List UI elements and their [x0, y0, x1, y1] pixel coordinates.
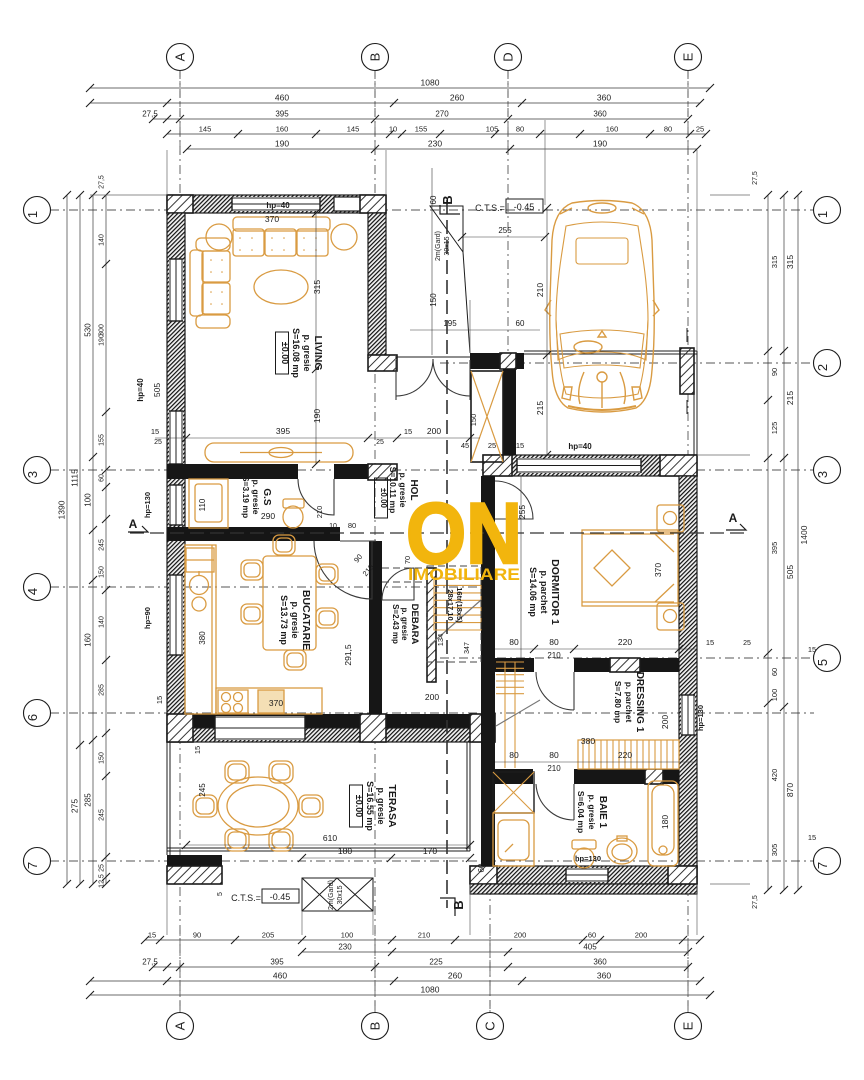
svg-text:D: D — [501, 52, 516, 61]
svg-text:A: A — [173, 1021, 188, 1030]
svg-text:80: 80 — [516, 125, 524, 134]
svg-text:S=16.55 mp: S=16.55 mp — [365, 781, 375, 831]
svg-text:S=13.73 mp: S=13.73 mp — [279, 595, 289, 645]
svg-text:360: 360 — [597, 971, 611, 981]
svg-text:12,5: 12,5 — [99, 874, 106, 888]
svg-text:3: 3 — [815, 471, 830, 478]
svg-text:150: 150 — [99, 752, 106, 764]
svg-text:360: 360 — [593, 110, 607, 119]
svg-text:15: 15 — [808, 645, 816, 654]
svg-text:215: 215 — [535, 401, 545, 415]
svg-text:370: 370 — [653, 563, 663, 577]
svg-text:30x15: 30x15 — [337, 885, 344, 904]
svg-text:60: 60 — [99, 474, 106, 482]
svg-text:245: 245 — [99, 539, 106, 551]
svg-text:150: 150 — [99, 566, 106, 578]
svg-text:420: 420 — [770, 769, 779, 782]
svg-text:315: 315 — [785, 255, 795, 269]
svg-text:270: 270 — [435, 110, 449, 119]
svg-text:3: 3 — [25, 471, 40, 478]
svg-text:A: A — [173, 52, 188, 61]
svg-text:60: 60 — [770, 668, 779, 676]
svg-text:1390: 1390 — [57, 500, 67, 519]
svg-text:45: 45 — [461, 441, 469, 450]
svg-text:125: 125 — [770, 422, 779, 435]
svg-text:180: 180 — [338, 846, 352, 856]
svg-text:145: 145 — [347, 125, 360, 134]
svg-text:DEBARA: DEBARA — [409, 604, 420, 645]
svg-text:hp=130: hp=130 — [143, 492, 152, 518]
svg-text:p. parchet: p. parchet — [539, 570, 549, 613]
svg-text:27,5: 27,5 — [142, 110, 158, 119]
svg-text:S=10.11 mp: S=10.11 mp — [388, 467, 398, 514]
svg-text:245: 245 — [198, 783, 207, 797]
svg-text:p. gresie: p. gresie — [302, 334, 312, 371]
svg-text:E: E — [681, 52, 696, 61]
svg-text:60: 60 — [477, 863, 486, 872]
svg-text:360: 360 — [597, 93, 611, 103]
svg-text:80: 80 — [549, 637, 559, 647]
svg-text:1080: 1080 — [421, 78, 440, 88]
svg-text:150: 150 — [429, 293, 438, 307]
svg-text:275: 275 — [70, 799, 80, 813]
svg-text:105: 105 — [486, 125, 499, 134]
svg-text:S=7.80 mp: S=7.80 mp — [613, 681, 623, 723]
svg-text:hp=90: hp=90 — [143, 607, 152, 629]
svg-text:220: 220 — [618, 637, 632, 647]
svg-text:90: 90 — [193, 931, 201, 940]
svg-text:27,5: 27,5 — [142, 958, 158, 967]
svg-text:370: 370 — [265, 214, 279, 224]
svg-text:25: 25 — [99, 864, 106, 872]
svg-text:7: 7 — [25, 862, 40, 869]
svg-text:347: 347 — [464, 642, 471, 654]
svg-text:100: 100 — [770, 689, 779, 702]
svg-text:15: 15 — [193, 746, 202, 754]
svg-text:S=16.08 mp: S=16.08 mp — [291, 328, 301, 378]
svg-text:260: 260 — [448, 971, 462, 981]
svg-text:p. gresie: p. gresie — [251, 480, 261, 515]
svg-text:15: 15 — [706, 638, 714, 647]
svg-text:p. gresie: p. gresie — [290, 601, 300, 638]
svg-text:S=6.04 mp: S=6.04 mp — [576, 791, 586, 833]
svg-text:B: B — [368, 53, 383, 62]
svg-text:BAIE 1: BAIE 1 — [597, 796, 608, 829]
svg-text:25: 25 — [376, 439, 384, 446]
svg-text:80: 80 — [664, 125, 672, 134]
svg-text:15: 15 — [404, 427, 412, 436]
svg-text:530: 530 — [84, 323, 93, 337]
svg-text:210: 210 — [315, 506, 324, 519]
svg-text:1080: 1080 — [421, 985, 440, 995]
svg-text:30x15: 30x15 — [444, 236, 451, 255]
svg-text:305: 305 — [770, 844, 779, 857]
svg-text:380: 380 — [581, 736, 595, 746]
svg-text:870: 870 — [785, 783, 795, 797]
svg-text:155: 155 — [99, 434, 106, 446]
svg-text:225: 225 — [429, 958, 443, 967]
svg-text:TERASA: TERASA — [386, 784, 398, 828]
svg-text:27,5: 27,5 — [752, 895, 759, 909]
svg-text:160: 160 — [84, 633, 93, 647]
svg-text:140: 140 — [99, 616, 106, 628]
svg-text:hp=130: hp=130 — [575, 854, 601, 863]
svg-text:395: 395 — [276, 426, 290, 436]
svg-text:2m(Gard): 2m(Gard) — [435, 231, 442, 261]
svg-text:395: 395 — [770, 542, 779, 555]
svg-text:S=3.19 mp: S=3.19 mp — [241, 476, 251, 518]
svg-text:300: 300 — [99, 324, 106, 336]
svg-text:610: 610 — [323, 833, 337, 843]
svg-text:A: A — [129, 517, 138, 531]
svg-text:-0.45: -0.45 — [270, 892, 291, 902]
svg-text:B: B — [368, 1022, 383, 1031]
svg-text:230: 230 — [338, 943, 352, 952]
svg-text:hp=40: hp=40 — [136, 378, 145, 402]
svg-text:395: 395 — [275, 110, 289, 119]
svg-text:150: 150 — [469, 414, 478, 427]
svg-text:90: 90 — [770, 368, 779, 376]
svg-text:p. gresie: p. gresie — [376, 787, 386, 824]
svg-text:A: A — [729, 511, 738, 525]
svg-text:±0.00: ±0.00 — [379, 488, 388, 509]
svg-text:B: B — [440, 195, 455, 204]
svg-text:DORMITOR 1: DORMITOR 1 — [549, 559, 561, 625]
svg-text:145: 145 — [199, 125, 212, 134]
svg-text:220: 220 — [618, 750, 632, 760]
svg-text:C.T.S.=: C.T.S.= — [475, 203, 505, 213]
svg-text:100: 100 — [84, 493, 93, 507]
svg-text:-0.45: -0.45 — [514, 202, 535, 212]
svg-text:B: B — [451, 900, 466, 909]
svg-text:140: 140 — [99, 234, 106, 246]
svg-text:15: 15 — [155, 696, 164, 704]
svg-text:1: 1 — [25, 211, 40, 218]
svg-text:315: 315 — [770, 256, 779, 269]
svg-text:80: 80 — [509, 637, 519, 647]
svg-text:230: 230 — [428, 139, 442, 149]
svg-text:505: 505 — [152, 383, 162, 397]
svg-text:80: 80 — [549, 750, 559, 760]
svg-text:190: 190 — [99, 334, 106, 346]
svg-text:hp=130: hp=130 — [696, 705, 705, 731]
svg-text:hp=40: hp=40 — [266, 201, 290, 210]
svg-text:60: 60 — [516, 319, 525, 328]
svg-text:210: 210 — [547, 651, 561, 660]
svg-text:195: 195 — [443, 319, 457, 328]
svg-text:2m(Gard): 2m(Gard) — [328, 880, 335, 910]
svg-text:290: 290 — [261, 511, 275, 521]
svg-text:25: 25 — [488, 441, 496, 450]
svg-text:p. gresie: p. gresie — [587, 795, 597, 830]
svg-text:291,5: 291,5 — [343, 644, 353, 666]
svg-text:200: 200 — [427, 426, 441, 436]
svg-text:25: 25 — [743, 640, 751, 647]
svg-text:180: 180 — [660, 815, 670, 829]
svg-text:505: 505 — [785, 565, 795, 579]
svg-text:200: 200 — [514, 931, 527, 940]
svg-text:160: 160 — [606, 125, 619, 134]
svg-text:200: 200 — [660, 715, 670, 729]
svg-text:200: 200 — [635, 931, 648, 940]
svg-text:210: 210 — [547, 764, 561, 773]
svg-text:1115: 1115 — [70, 469, 80, 487]
svg-text:IMOBILIARE: IMOBILIARE — [408, 565, 520, 584]
svg-text:285: 285 — [84, 793, 93, 807]
svg-text:10: 10 — [389, 125, 397, 134]
svg-text:2: 2 — [815, 364, 830, 371]
svg-text:DRESSING 1: DRESSING 1 — [634, 672, 645, 733]
svg-text:360: 360 — [593, 958, 607, 967]
svg-text:LIVING: LIVING — [312, 335, 324, 370]
svg-text:370: 370 — [269, 698, 283, 708]
svg-text:190: 190 — [593, 139, 607, 149]
svg-text:E: E — [681, 1021, 696, 1030]
svg-text:80: 80 — [348, 521, 356, 530]
svg-text:110: 110 — [198, 498, 207, 511]
svg-text:210: 210 — [535, 283, 545, 297]
svg-text:27,5: 27,5 — [99, 175, 106, 189]
svg-text:15: 15 — [516, 441, 524, 450]
svg-text:p. parchet: p. parchet — [624, 682, 634, 723]
svg-text:27,5: 27,5 — [752, 171, 759, 185]
svg-text:395: 395 — [270, 958, 284, 967]
svg-text:200: 200 — [425, 692, 439, 702]
svg-text:16tr(18x5): 16tr(18x5) — [455, 587, 464, 623]
svg-text:6: 6 — [25, 714, 40, 721]
svg-text:134: 134 — [436, 634, 445, 647]
svg-text:170: 170 — [423, 846, 437, 856]
svg-text:C: C — [483, 1021, 498, 1030]
svg-text:60: 60 — [429, 195, 438, 204]
svg-text:hp=40: hp=40 — [568, 442, 592, 451]
svg-text:1: 1 — [815, 211, 830, 218]
svg-text:15: 15 — [148, 931, 156, 940]
svg-text:405: 405 — [583, 943, 597, 952]
svg-text:S=2.43 mp: S=2.43 mp — [391, 604, 400, 644]
svg-text:260: 260 — [450, 93, 464, 103]
svg-text:215: 215 — [785, 391, 795, 405]
svg-text:15: 15 — [151, 427, 159, 436]
svg-text:1400: 1400 — [799, 525, 809, 544]
svg-text:315: 315 — [312, 280, 322, 294]
svg-text:190: 190 — [275, 139, 289, 149]
svg-text:205: 205 — [262, 931, 275, 940]
svg-text:155: 155 — [415, 125, 428, 134]
svg-text:380: 380 — [198, 631, 207, 645]
svg-text:5: 5 — [815, 659, 830, 666]
svg-text:100: 100 — [341, 931, 354, 940]
svg-text:25: 25 — [696, 125, 704, 134]
svg-text:245: 245 — [99, 809, 106, 821]
svg-text:190: 190 — [312, 409, 322, 423]
svg-text:460: 460 — [273, 971, 287, 981]
svg-text:S=14.06 mp: S=14.06 mp — [528, 567, 538, 617]
svg-text:160: 160 — [276, 125, 289, 134]
svg-text:5: 5 — [217, 892, 224, 896]
svg-text:C.T.S.=: C.T.S.= — [231, 893, 261, 903]
svg-text:255: 255 — [498, 226, 512, 235]
svg-text:25: 25 — [154, 439, 162, 446]
svg-text:460: 460 — [275, 93, 289, 103]
svg-text:285: 285 — [99, 684, 106, 696]
svg-text:G.S: G.S — [261, 488, 272, 506]
svg-text:80: 80 — [509, 750, 519, 760]
svg-text:7: 7 — [815, 862, 830, 869]
svg-text:60: 60 — [588, 931, 596, 940]
svg-text:p. gresie: p. gresie — [400, 608, 409, 641]
svg-text:15: 15 — [808, 833, 816, 842]
svg-text:4: 4 — [25, 588, 40, 595]
svg-text:BUCATARIE: BUCATARIE — [300, 590, 312, 650]
svg-text:210: 210 — [418, 931, 431, 940]
svg-text:10: 10 — [329, 523, 337, 530]
